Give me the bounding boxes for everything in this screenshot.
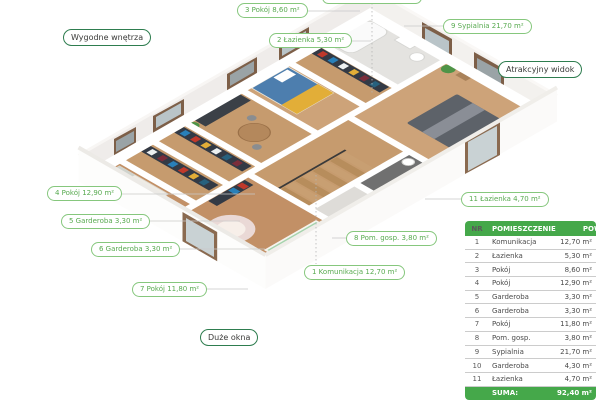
room-label-pokoj-4: 4 Pokój 12,90 m² [47,186,122,201]
table-row: 8Pom. gosp.3,80 m² [465,332,596,346]
room-label-komunikacja-1: 1 Komunikacja 12,70 m² [304,265,405,280]
table-suma-row: SUMA: 92,40 m² [465,387,596,400]
feature-label-duze-okna: Duże okna [200,329,258,346]
table-row: 2Łazienka5,30 m² [465,250,596,264]
room-label-lazienka-2: 2 Łazienka 5,30 m² [269,33,352,48]
table-header: NR POMIESZCZENIE POW. [465,221,596,236]
room-label-lazienka-11: 11 Łazienka 4,70 m² [461,192,549,207]
room-label-sypialnia-9: 9 Sypialnia 21,70 m² [443,19,532,34]
table-row: 5Garderoba3,30 m² [465,291,596,305]
floorplan-infographic: 3 Pokój 8,60 m² 2 Łazienka 5,30 m² 9 Syp… [0,0,600,400]
room-label-pokoj-3: 3 Pokój 8,60 m² [237,3,308,18]
feature-label-wygodne-wnetrza: Wygodne wnętrza [63,29,151,46]
room-label-garderoba-5: 5 Garderoba 3,30 m² [61,214,150,229]
header-name: POMIESZCZENIE [489,225,556,233]
room-label-garderoba-6: 6 Garderoba 3,30 m² [91,242,180,257]
table-row: 10Garderoba4,30 m² [465,359,596,373]
suma-value: 92,40 m² [544,389,596,397]
header-nr: NR [465,225,489,233]
feature-label-atrakcyjny-widok: Atrakcyjny widok [498,61,582,78]
suma-label: SUMA: [465,389,544,397]
header-pow: POW. [556,225,600,233]
table-row: 7Pokój11,80 m² [465,318,596,332]
table-row: 9Sypialnia21,70 m² [465,346,596,360]
room-label-pokoj-7: 7 Pokój 11,80 m² [132,282,207,297]
room-label-top-cut [322,0,422,4]
table-row: 4Pokój12,90 m² [465,277,596,291]
room-areas-table: NR POMIESZCZENIE POW. 1Komunikacja12,70 … [465,221,596,400]
table-row: 6Garderoba3,30 m² [465,304,596,318]
room-label-pom-gosp-8: 8 Pom. gosp. 3,80 m² [346,231,437,246]
table-row: 3Pokój8,60 m² [465,263,596,277]
table-row: 1Komunikacja12,70 m² [465,236,596,250]
table-row: 11Łazienka4,70 m² [465,373,596,387]
